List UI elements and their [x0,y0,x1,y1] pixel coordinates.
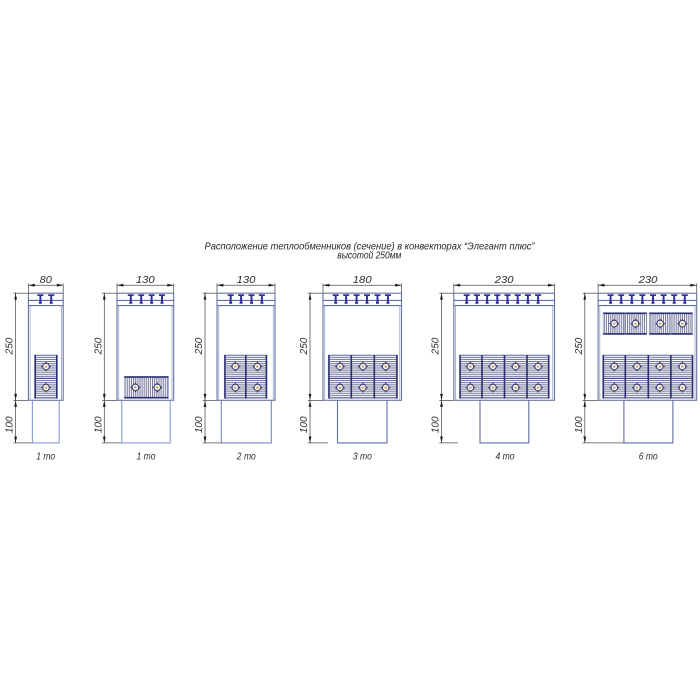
svg-text:3 то: 3 то [353,452,372,463]
svg-text:130: 130 [237,275,256,286]
svg-text:6 то: 6 то [639,452,658,463]
svg-text:250: 250 [5,337,16,355]
svg-text:100: 100 [299,416,310,433]
svg-text:1 то: 1 то [36,452,55,463]
svg-text:230: 230 [637,275,657,286]
svg-text:230: 230 [494,275,514,286]
svg-text:130: 130 [136,275,155,286]
svg-text:100: 100 [5,416,16,433]
svg-text:4 то: 4 то [496,452,515,463]
svg-text:100: 100 [574,416,585,433]
svg-text:80: 80 [40,275,53,286]
svg-text:100: 100 [194,416,205,433]
svg-text:180: 180 [353,275,372,286]
svg-text:250: 250 [574,337,585,355]
svg-text:2 то: 2 то [236,452,256,463]
svg-text:высотой 250мм: высотой 250мм [337,250,401,261]
svg-text:250: 250 [194,337,205,355]
svg-text:1 то: 1 то [137,452,156,463]
svg-text:250: 250 [299,337,310,355]
svg-text:250: 250 [431,337,442,355]
svg-text:100: 100 [431,416,442,433]
svg-text:100: 100 [93,416,104,433]
svg-text:250: 250 [93,337,104,355]
